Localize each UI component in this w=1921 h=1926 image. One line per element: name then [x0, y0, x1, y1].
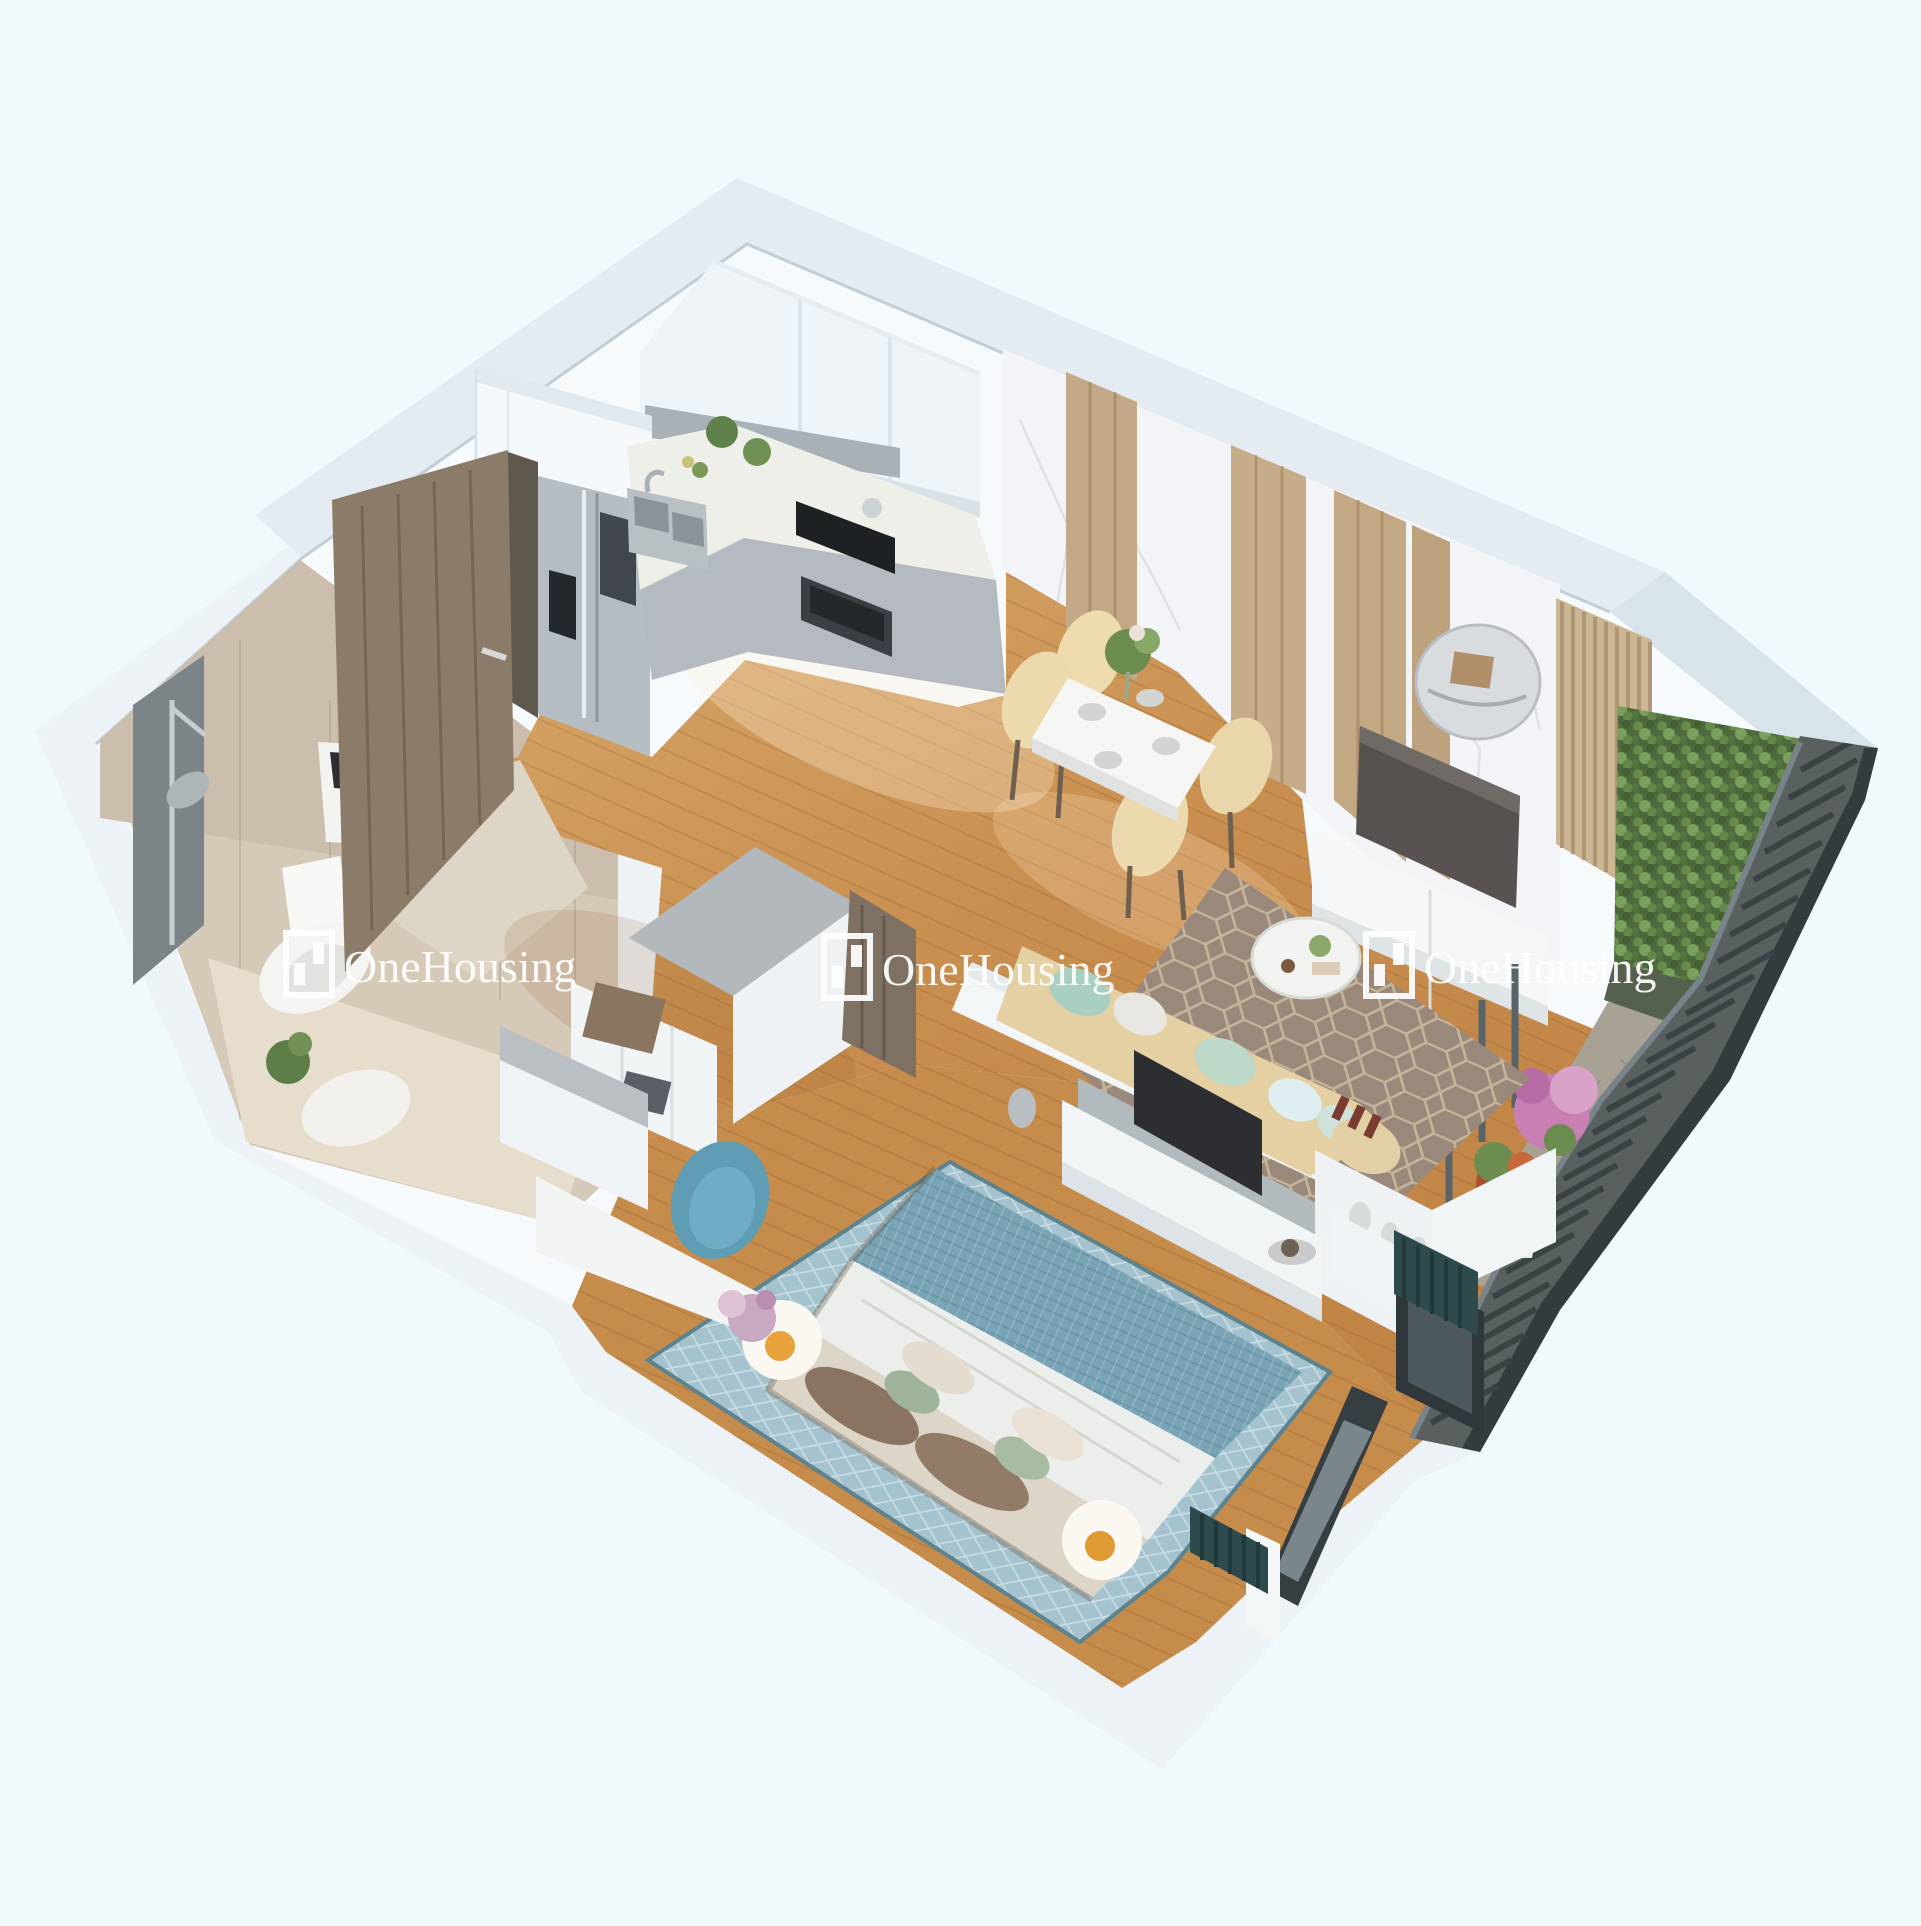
svg-text:OneHousing: OneHousing — [344, 941, 577, 992]
svg-text:OneHousing: OneHousing — [1424, 942, 1657, 993]
svg-text:OneHousing: OneHousing — [882, 944, 1115, 995]
